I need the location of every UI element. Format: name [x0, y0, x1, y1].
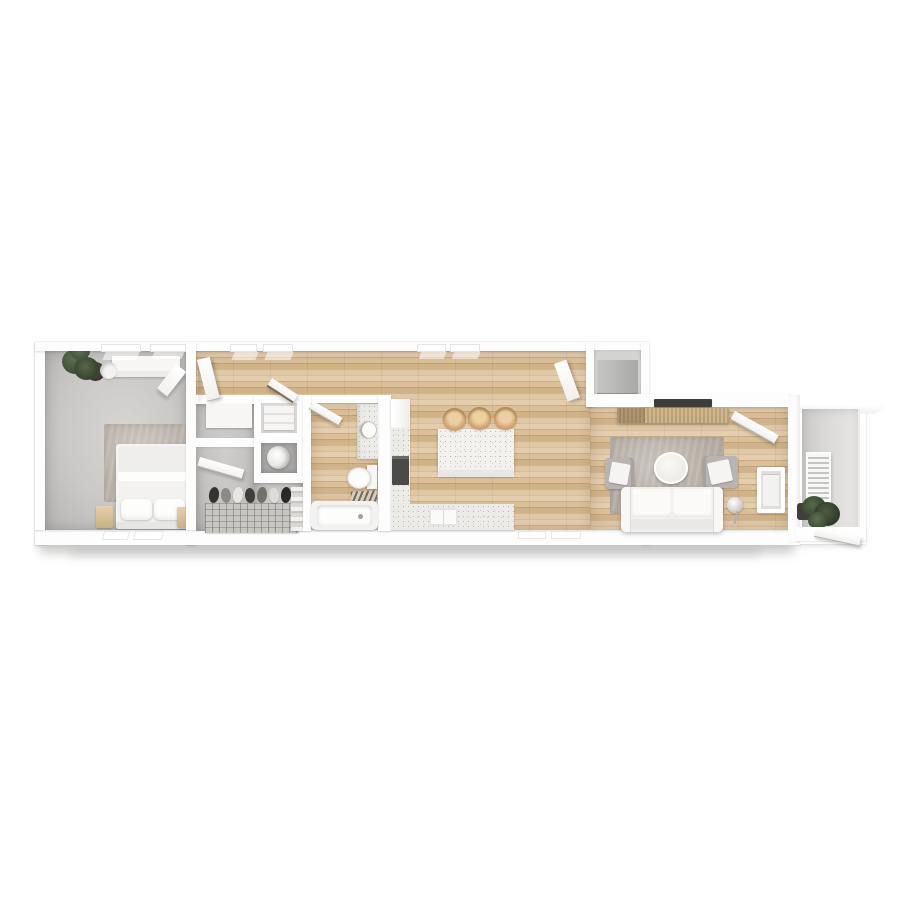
- island-front-face: [438, 470, 514, 477]
- pillow: [121, 499, 152, 520]
- coffee-table: [654, 452, 688, 484]
- plant-foliage: [74, 357, 99, 380]
- sofa-back: [631, 519, 713, 530]
- kitchen-island: [438, 429, 514, 470]
- window-slit: [551, 531, 581, 539]
- sofa: [621, 487, 723, 532]
- window-light: [419, 352, 447, 359]
- console-cabinet-dark: [617, 408, 645, 423]
- bathroom-left-wall: [303, 395, 311, 531]
- duvet: [118, 446, 188, 472]
- window-slit: [101, 344, 141, 352]
- refrigerator: [391, 399, 410, 428]
- balcony-edge: [858, 409, 860, 529]
- window-light: [231, 352, 258, 360]
- linen-divider-wall: [196, 438, 258, 447]
- living-right-wall: [788, 395, 800, 543]
- water-heater: [267, 446, 290, 469]
- bar-stool: [494, 407, 517, 430]
- floor-lamp: [727, 497, 743, 513]
- armchair-right: [703, 456, 738, 488]
- sofa-arm: [621, 487, 631, 532]
- tub-basin: [317, 505, 372, 526]
- nightstand-left: [96, 506, 113, 528]
- window-slit: [150, 344, 186, 352]
- bedroom-divider-wall: [186, 342, 196, 545]
- window-slit: [417, 344, 446, 352]
- wire-shoe-rack: [205, 503, 299, 533]
- chair-cushion: [608, 462, 630, 486]
- washer-dryer: [597, 352, 638, 396]
- window-slit: [230, 344, 257, 352]
- bar-stool: [468, 407, 491, 430]
- armchair-left: [605, 458, 634, 489]
- duvet-fold: [118, 472, 188, 481]
- window-slit: [518, 531, 546, 539]
- sofa-cushion: [632, 489, 671, 517]
- sofa-cushion: [673, 489, 712, 517]
- chair-cushion: [707, 459, 733, 485]
- sink-divider: [443, 510, 444, 524]
- wall-window-frame: [757, 467, 785, 513]
- window-slit: [133, 531, 164, 540]
- utility-enclosure: [254, 395, 304, 483]
- toilet-bowl: [347, 467, 371, 489]
- sofa-arm: [713, 487, 723, 532]
- tub-faucet: [358, 514, 363, 519]
- window-light: [452, 352, 481, 359]
- utility-cabinet: [264, 406, 294, 430]
- vanity-sink: [359, 421, 377, 439]
- white-planter: [100, 362, 117, 379]
- window-slit: [102, 531, 130, 540]
- bathroom-right-wall: [378, 395, 391, 531]
- tv: [654, 399, 712, 407]
- media-console: [617, 408, 729, 423]
- floorplan-canvas: [0, 0, 900, 900]
- bathtub: [311, 501, 378, 530]
- oven: [392, 456, 409, 485]
- linen-cabinet: [206, 404, 252, 428]
- window-pane: [763, 474, 779, 506]
- folded-clothes: [291, 487, 303, 531]
- window-slit: [450, 344, 480, 352]
- window-light: [264, 352, 293, 360]
- window-slit: [263, 344, 293, 352]
- window-light: [152, 352, 185, 359]
- drop-shadow-soft: [70, 548, 760, 558]
- window-light: [102, 352, 139, 360]
- outer-wall-left: [35, 342, 45, 545]
- bar-stool: [443, 408, 466, 431]
- kitchen-sink: [429, 508, 458, 526]
